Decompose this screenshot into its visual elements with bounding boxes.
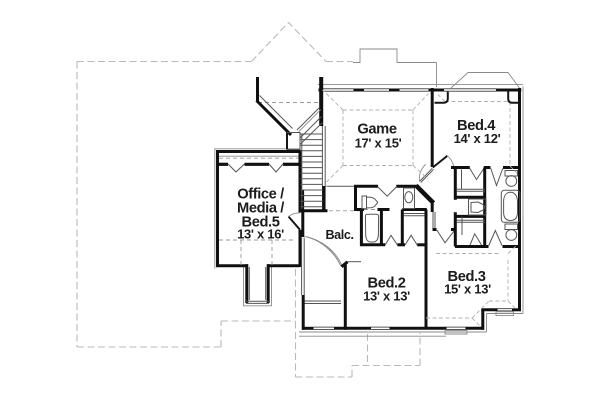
svg-text:17' x 15': 17' x 15' [355,136,402,151]
svg-text:Balc.: Balc. [325,228,353,242]
svg-text:13' x 13': 13' x 13' [363,288,410,303]
svg-text:13' x 16': 13' x 16' [237,227,284,242]
svg-text:15' x 13': 15' x 13' [444,282,491,297]
svg-text:14' x 12': 14' x 12' [454,131,501,146]
